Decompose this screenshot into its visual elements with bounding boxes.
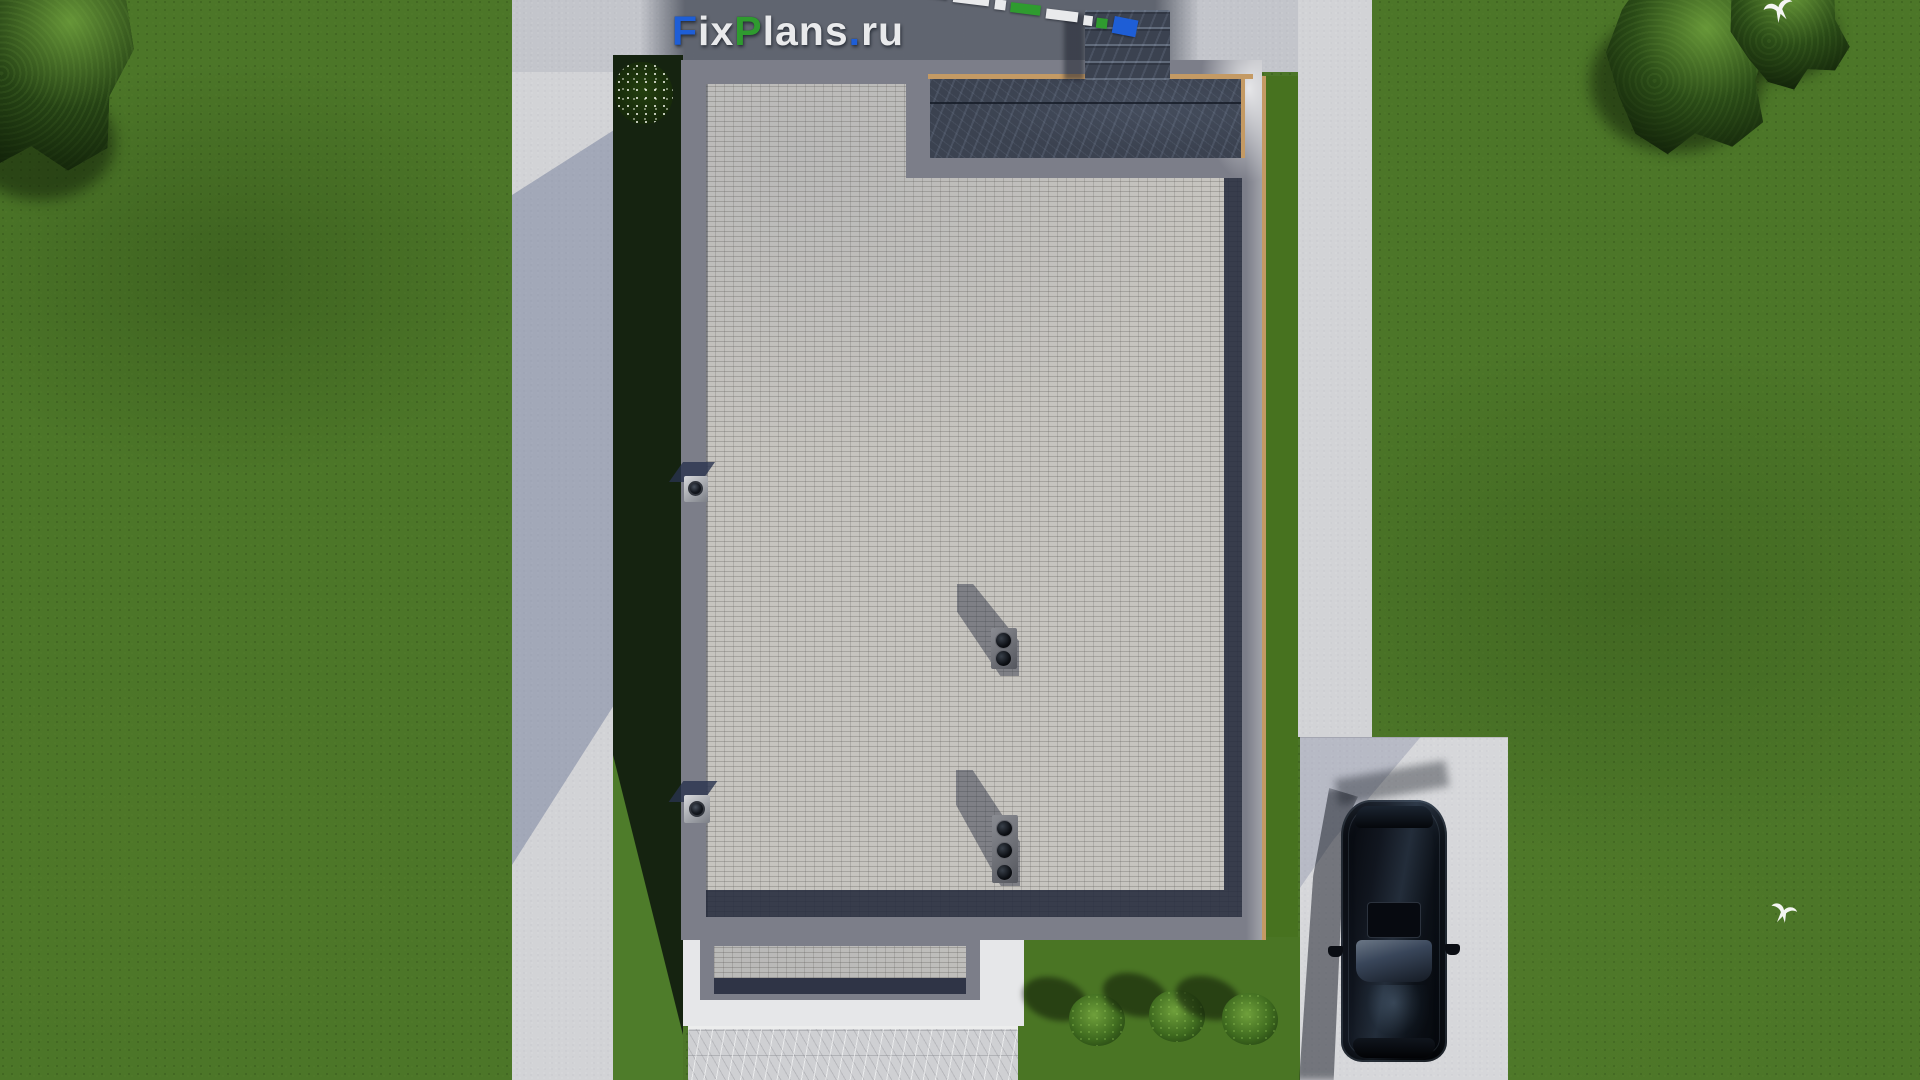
terrace-trim-east — [1241, 79, 1245, 158]
parapet-shadow-south — [706, 890, 1242, 917]
ruler-segment-white — [953, 0, 990, 6]
shaded-grass-strip-west — [613, 55, 683, 1080]
entrance-walkway — [688, 1026, 1018, 1080]
vent-flue — [996, 864, 1013, 881]
logo-letter: ix — [698, 8, 734, 54]
logo-letter: F — [672, 8, 698, 54]
car-sunroof — [1367, 902, 1421, 938]
canopy-tiles — [714, 946, 966, 978]
car-hood-reflection — [1359, 985, 1429, 1045]
car-front-bumper — [1353, 1038, 1435, 1058]
terrace-slate — [930, 79, 1245, 158]
logo-letter: . — [849, 8, 861, 54]
parapet-east-highlight — [1246, 60, 1262, 940]
parapet-shadow-east — [1224, 178, 1242, 890]
vent-flue — [996, 820, 1013, 837]
wall-light-lens — [689, 801, 705, 817]
roof-vent-double — [991, 628, 1017, 669]
flower-shrub — [615, 62, 673, 124]
ruler-segment-green — [1010, 2, 1041, 16]
canopy-shadow-band — [714, 978, 966, 994]
entrance-canopy — [700, 940, 980, 1000]
shrub — [1222, 993, 1278, 1045]
wall-light-south — [684, 795, 710, 823]
car-black-suv — [1341, 800, 1447, 1062]
wall-light-north — [684, 476, 708, 502]
ruler-segment-green — [1096, 18, 1108, 29]
terrace-joint-line — [930, 102, 1245, 104]
vent-flue — [995, 632, 1012, 649]
roof-vent-triple — [992, 815, 1018, 883]
logo-letter: lans — [763, 8, 849, 54]
car-mirror-right — [1445, 944, 1460, 955]
grass-strip-east — [1266, 76, 1298, 1080]
fixplans-watermark: FixPlans.ru — [672, 8, 904, 55]
car-rear-glass — [1355, 806, 1433, 828]
ruler-segment-white — [994, 0, 1006, 10]
vent-flue — [996, 842, 1013, 859]
right-path — [1298, 0, 1372, 737]
ruler-segment-blue-end — [1112, 16, 1139, 37]
trim-east — [1262, 76, 1266, 940]
vent-flue — [995, 650, 1012, 667]
logo-letter: P — [734, 8, 762, 54]
car-mirror-left — [1328, 946, 1343, 957]
wall-light-lens — [688, 481, 703, 496]
sunlit-grass-wedge — [613, 55, 683, 1080]
ruler-segment-white — [1083, 15, 1093, 26]
ruler-segment-white — [1045, 8, 1078, 22]
render-viewport: FixPlans.ru — [0, 0, 1920, 1080]
car-windshield — [1356, 940, 1432, 982]
